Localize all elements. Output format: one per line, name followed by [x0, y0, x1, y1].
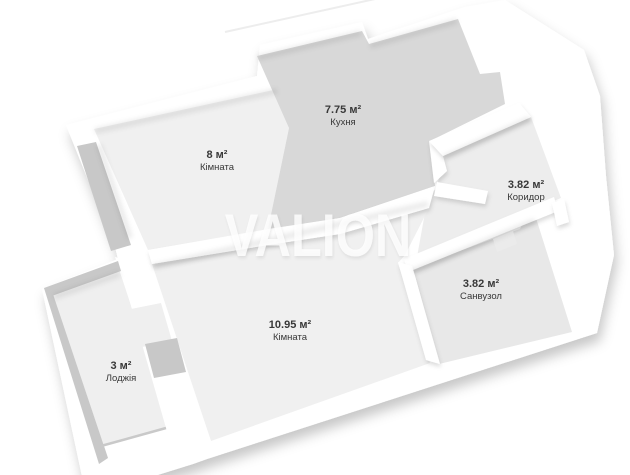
svg-text:VALION: VALION [225, 202, 412, 269]
